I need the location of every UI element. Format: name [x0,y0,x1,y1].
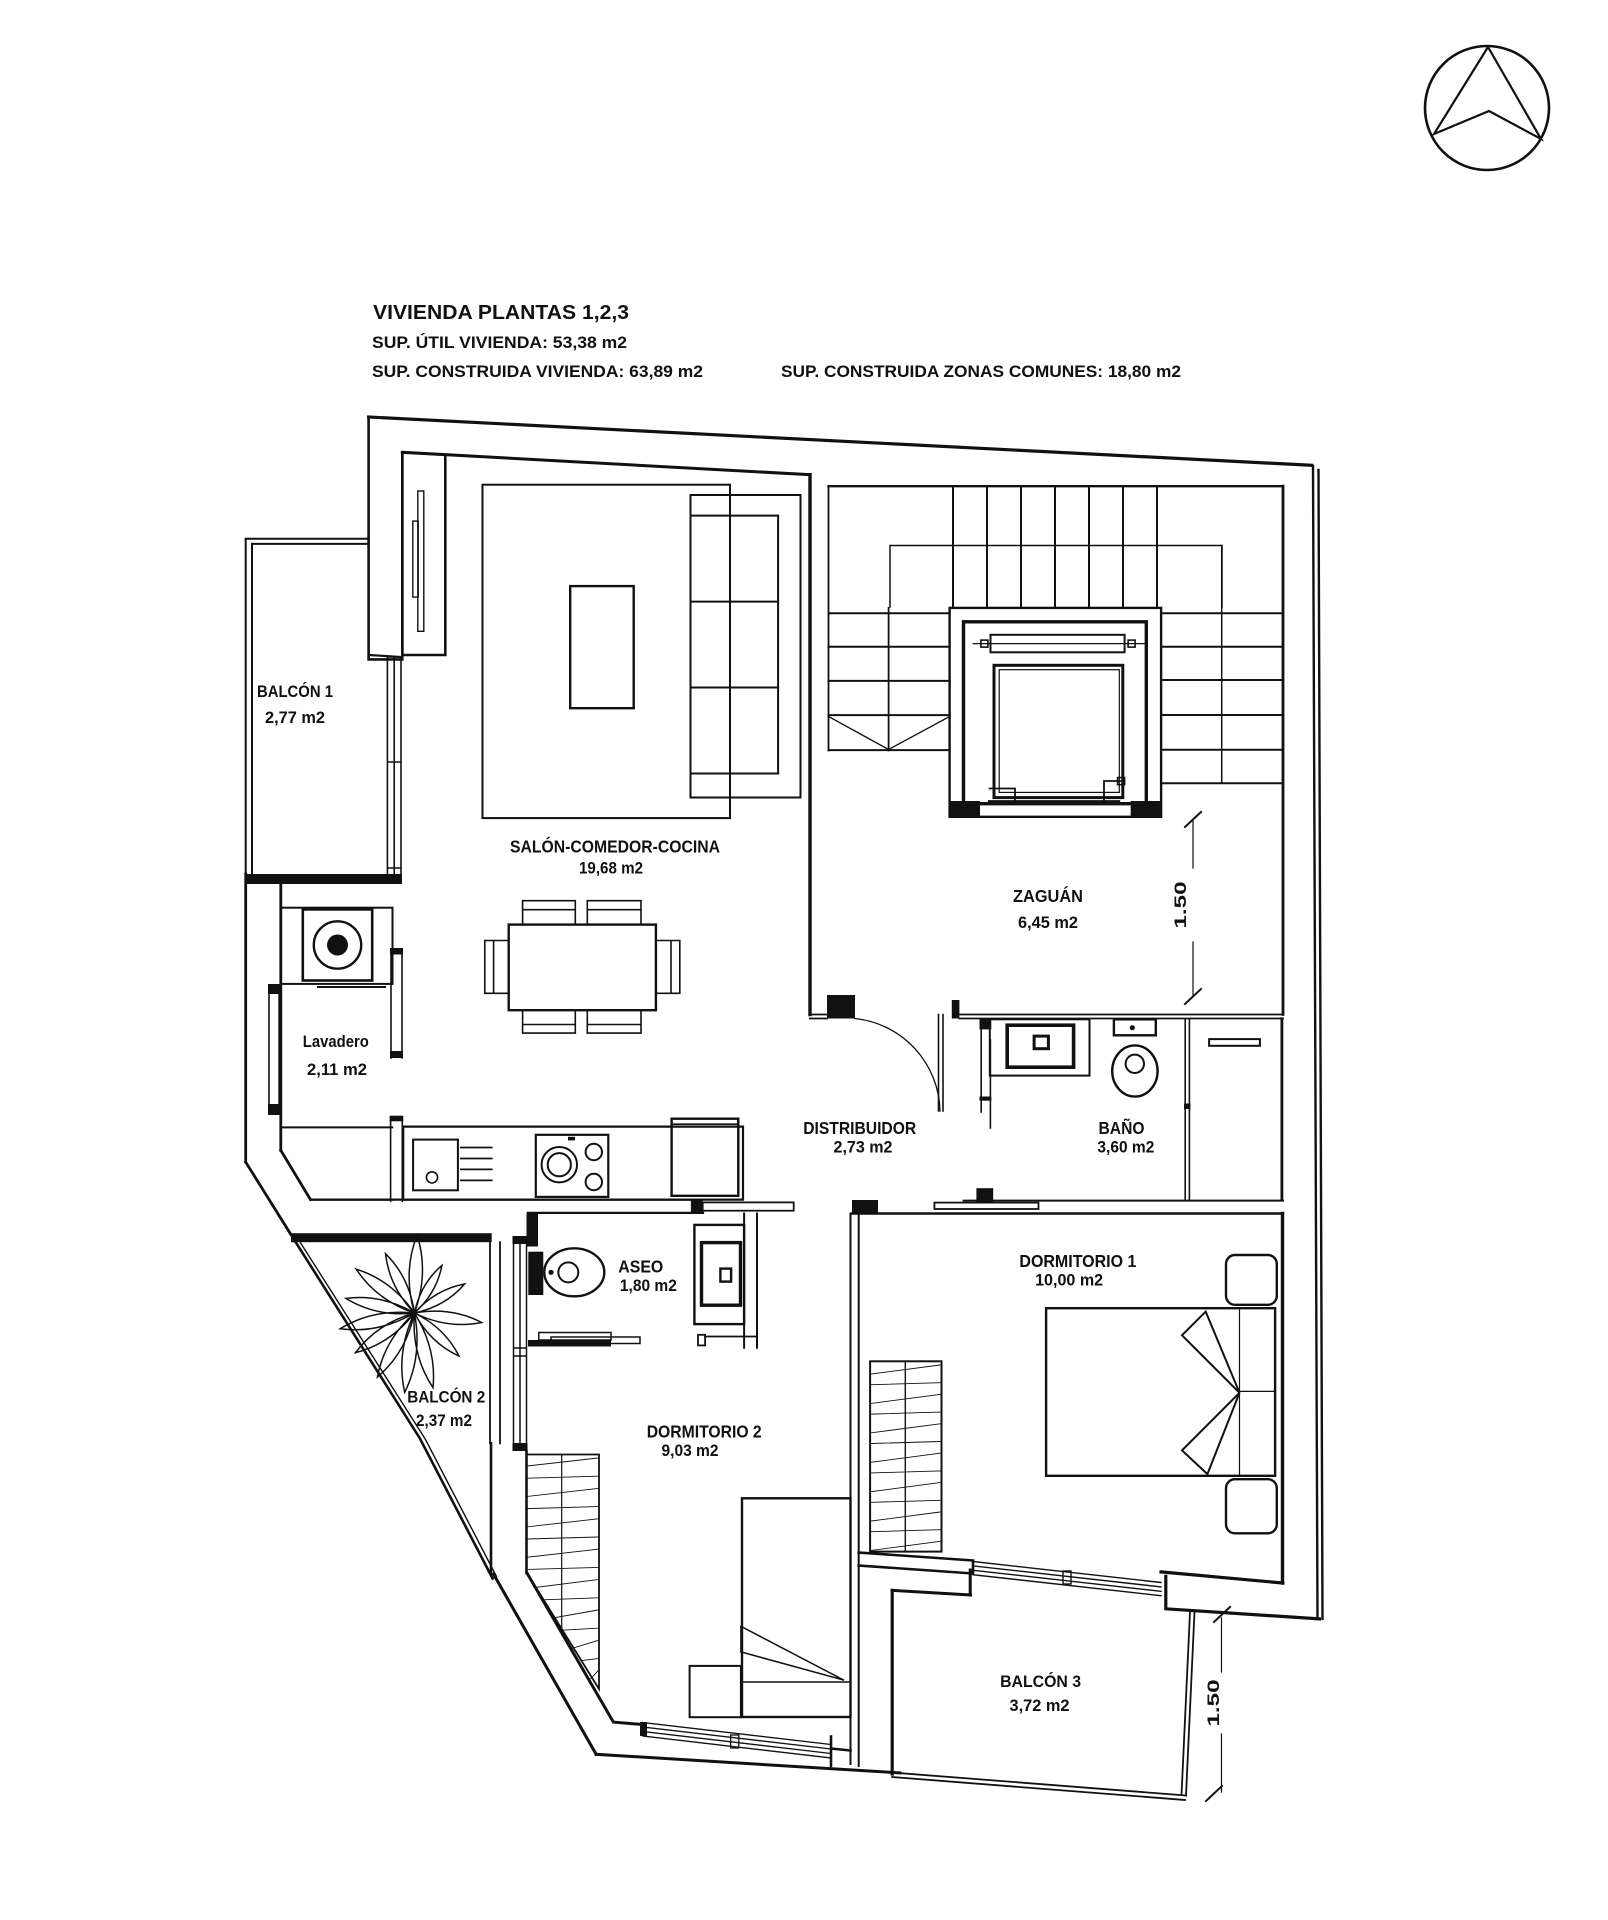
svg-text:2,77 m2: 2,77 m2 [265,708,325,727]
svg-text:SALÓN-COMEDOR-COCINA: SALÓN-COMEDOR-COCINA [510,836,720,857]
svg-text:SUP. CONSTRUIDA VIVIENDA: 63,8: SUP. CONSTRUIDA VIVIENDA: 63,89 m2 [372,362,703,381]
svg-text:ZAGUÁN: ZAGUÁN [1013,885,1083,906]
svg-text:2,11 m2: 2,11 m2 [307,1060,367,1079]
svg-text:10,00 m2: 10,00 m2 [1035,1271,1103,1290]
svg-text:2,37 m2: 2,37 m2 [416,1411,472,1430]
svg-text:3,72 m2: 3,72 m2 [1010,1696,1070,1715]
svg-text:SUP. ÚTIL VIVIENDA: 53,38 m2: SUP. ÚTIL VIVIENDA: 53,38 m2 [372,333,627,352]
svg-text:ASEO: ASEO [618,1257,663,1277]
svg-text:19,68 m2: 19,68 m2 [579,859,643,878]
svg-text:SUP. CONSTRUIDA ZONAS COMUNES:: SUP. CONSTRUIDA ZONAS COMUNES: 18,80 m2 [781,362,1181,381]
svg-text:DISTRIBUIDOR: DISTRIBUIDOR [803,1118,916,1138]
svg-text:1,80 m2: 1,80 m2 [620,1276,677,1295]
svg-text:1.50: 1.50 [1204,1680,1223,1727]
svg-text:Lavadero: Lavadero [303,1033,369,1051]
svg-text:BALCÓN 1: BALCÓN 1 [257,682,333,701]
svg-text:DORMITORIO 1: DORMITORIO 1 [1019,1251,1136,1271]
svg-text:1.50: 1.50 [1171,882,1190,929]
svg-text:DORMITORIO 2: DORMITORIO 2 [647,1422,762,1442]
svg-text:BALCÓN 2: BALCÓN 2 [407,1388,485,1407]
svg-text:2,73 m2: 2,73 m2 [834,1138,893,1157]
svg-text:VIVIENDA PLANTAS 1,2,3: VIVIENDA PLANTAS 1,2,3 [373,301,629,324]
svg-text:BALCÓN 3: BALCÓN 3 [1000,1672,1081,1691]
svg-text:6,45 m2: 6,45 m2 [1018,913,1078,932]
svg-text:BAÑO: BAÑO [1099,1117,1145,1138]
svg-text:3,60 m2: 3,60 m2 [1097,1138,1154,1157]
svg-text:9,03 m2: 9,03 m2 [662,1441,719,1460]
